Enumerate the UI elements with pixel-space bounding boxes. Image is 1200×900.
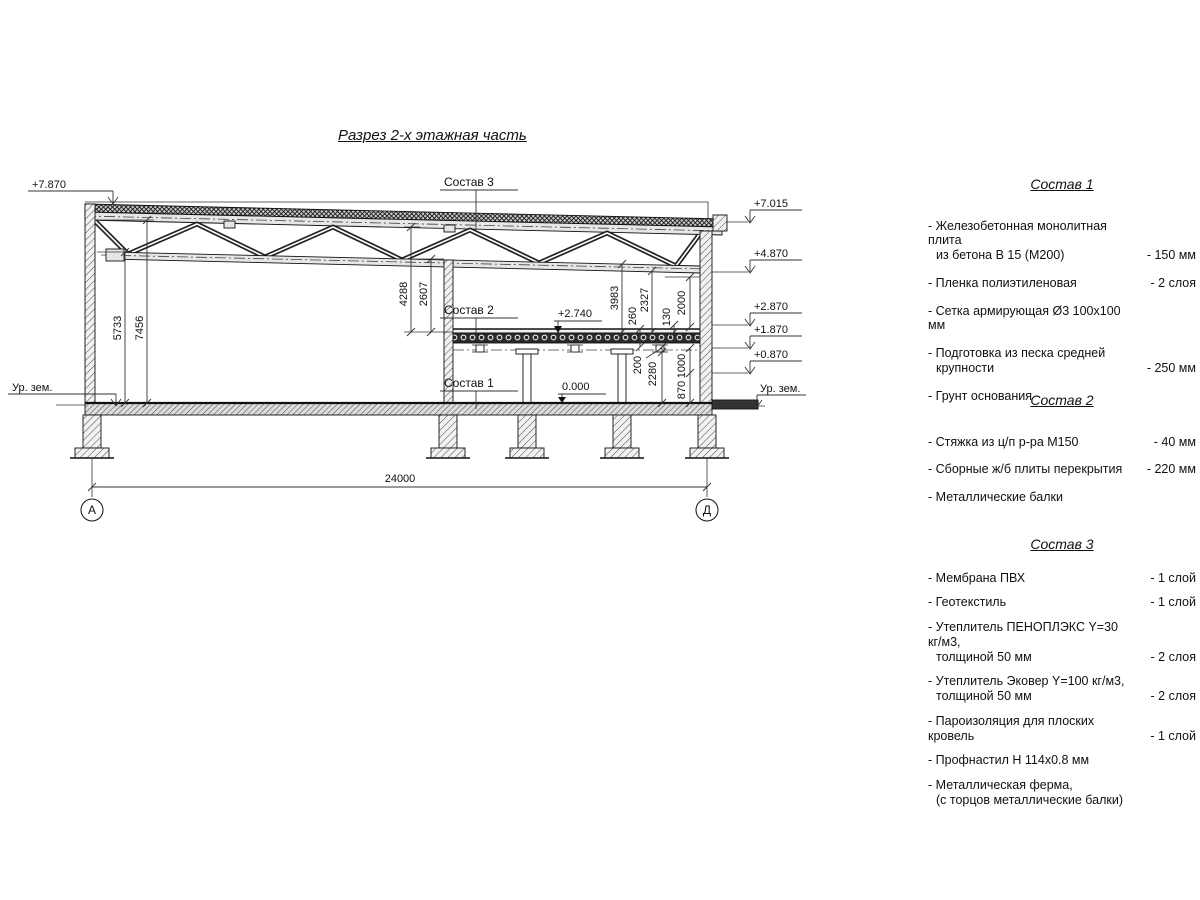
item-value: - 220 мм xyxy=(1141,462,1196,477)
dim-7456: 7456 xyxy=(134,316,146,340)
list-item: - Подготовка из песка среднейкрупности -… xyxy=(928,346,1196,376)
second-floor-slab xyxy=(450,329,702,352)
list-item: - Утеплитель ПЕНОПЛЭКС Y=30 кг/м3,толщин… xyxy=(928,620,1196,664)
dim-870: 870 xyxy=(676,381,688,399)
dim-3983: 3983 xyxy=(609,286,621,310)
list-item: - Пароизоляция для плоских кровель - 1 с… xyxy=(928,714,1196,744)
dim-2280: 2280 xyxy=(647,362,659,386)
foundation xyxy=(685,415,729,458)
span-dimension: 24000 А Д xyxy=(81,458,718,521)
truss-end-plate xyxy=(106,249,124,261)
item-value: - 150 мм xyxy=(1141,248,1196,263)
floor-beam-section xyxy=(567,345,583,352)
elevation-right-3: +2.870 xyxy=(754,301,788,313)
dim-2327: 2327 xyxy=(639,288,651,312)
item-value: - 2 слоя xyxy=(1145,650,1196,665)
dim-260: 260 xyxy=(627,307,639,325)
item-value: - 250 мм xyxy=(1141,361,1196,376)
dim-200: 200 xyxy=(632,356,644,374)
sostav-3-panel: Состав 3 - Мембрана ПВХ - 1 слой - Геоте… xyxy=(928,536,1196,818)
elevation-right-2: +4.870 xyxy=(754,248,788,260)
list-item: - Сборные ж/б плиты перекрытия - 220 мм xyxy=(928,462,1196,477)
item-value: - 2 слоя xyxy=(1145,689,1196,704)
axis-label-a: А xyxy=(88,503,96,517)
ground-floor-columns xyxy=(516,349,633,403)
dim-1000: 1000 xyxy=(676,354,688,378)
chord-gusset xyxy=(224,221,235,228)
ground-level-left: Ур. зем. xyxy=(12,382,52,394)
dim-5733: 5733 xyxy=(112,316,124,340)
foundation xyxy=(600,415,644,458)
item-value: - 40 мм xyxy=(1148,435,1196,450)
list-item: - Мембрана ПВХ - 1 слой xyxy=(928,571,1196,586)
item-value: - 1 слой xyxy=(1144,595,1196,610)
list-item: - Стяжка из ц/п р-ра М150 - 40 мм xyxy=(928,435,1196,450)
dim-2607: 2607 xyxy=(418,282,430,306)
list-item: - Геотекстиль - 1 слой xyxy=(928,595,1196,610)
list-item: - Сетка армирующая Ø3 100x100 мм xyxy=(928,304,1196,334)
list-item: - Пленка полиэтиленовая - 2 слоя xyxy=(928,276,1196,291)
elevation-right-5: +0.870 xyxy=(754,349,788,361)
level-flags: +2.740 0.000 xyxy=(554,308,606,403)
ground-level-right: Ур. зем. xyxy=(760,383,800,395)
left-wall xyxy=(85,204,95,403)
list-item: - Утеплитель Эковер Y=100 кг/м3,толщиной… xyxy=(928,674,1196,704)
callout-sostav1: Состав 1 xyxy=(444,376,494,390)
drawing-title: Разрез 2-х этажная часть xyxy=(338,127,527,144)
dim-130: 130 xyxy=(661,308,673,326)
roof-end-cap xyxy=(713,215,727,231)
elevation-left-top: +7.870 xyxy=(32,179,66,191)
foundation xyxy=(505,415,549,458)
foundations xyxy=(70,415,729,458)
axis-label-d: Д xyxy=(703,503,711,517)
elevation-right-1: +7.015 xyxy=(754,198,788,210)
item-value: - 2 слоя xyxy=(1145,276,1196,291)
foundation xyxy=(426,415,470,458)
panel-title: Состав 3 xyxy=(928,536,1196,553)
list-item: - Металлическая ферма,(с торцов металлич… xyxy=(928,778,1196,808)
callout-sostav3: Состав 3 xyxy=(444,175,494,189)
level-slab: +2.740 xyxy=(558,308,592,320)
chord-gusset xyxy=(444,225,455,232)
foundation xyxy=(70,415,114,458)
elevation-right-4: +1.870 xyxy=(754,324,788,336)
list-item: - Металлические балки xyxy=(928,490,1196,505)
item-value: - 1 слой xyxy=(1144,729,1196,744)
callout-sostav2: Состав 2 xyxy=(444,303,494,317)
panel-title: Состав 2 xyxy=(928,392,1196,409)
dim-2000: 2000 xyxy=(676,291,688,315)
level-floor: 0.000 xyxy=(562,381,590,393)
right-wall xyxy=(700,231,712,403)
panel-title: Состав 1 xyxy=(928,176,1196,193)
right-apron xyxy=(712,400,758,409)
sostav-2-panel: Состав 2 - Стяжка из ц/п р-ра М150 - 40 … xyxy=(928,392,1196,518)
floor-beam-section xyxy=(472,345,488,352)
dim-span: 24000 xyxy=(385,473,416,485)
list-item: - Профнастил Н 114х0.8 мм xyxy=(928,753,1196,768)
dim-4288: 4288 xyxy=(398,282,410,306)
ground-slab xyxy=(56,400,765,415)
item-value: - 1 слой xyxy=(1144,571,1196,586)
drawing-sheet: Разрез 2-х этажная часть xyxy=(0,0,1200,900)
sostav-1-panel: Состав 1 - Железобетонная монолитная пли… xyxy=(928,176,1196,416)
list-item: - Железобетонная монолитная плитаиз бето… xyxy=(928,219,1196,263)
